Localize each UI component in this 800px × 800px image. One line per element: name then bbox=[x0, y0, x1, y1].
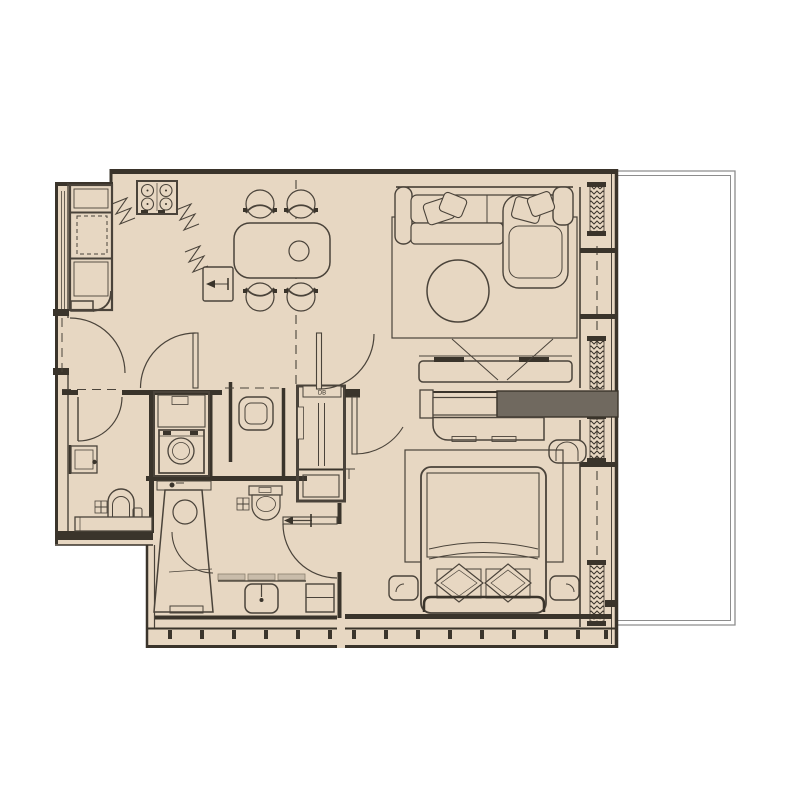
toilet bbox=[108, 489, 134, 521]
shelf bbox=[75, 517, 152, 531]
bedroom-door-stub bbox=[345, 389, 360, 398]
balcony bbox=[618, 171, 735, 625]
divider-end-cap bbox=[420, 390, 433, 418]
db-label: DB bbox=[318, 391, 326, 397]
bedroom-door-leaf bbox=[352, 397, 357, 454]
stove bbox=[137, 181, 177, 214]
hall-table bbox=[239, 397, 273, 430]
floor-plan: DB bbox=[0, 0, 800, 800]
armchair bbox=[549, 440, 586, 463]
side-label-box bbox=[298, 407, 304, 439]
guestbath-exterior-wall bbox=[55, 531, 153, 540]
bed-frame bbox=[421, 467, 546, 613]
insulation-hatch-2 bbox=[590, 339, 604, 389]
corridor-door-leaf bbox=[317, 333, 322, 389]
wall-sink bbox=[71, 446, 97, 473]
nightstand-right bbox=[550, 576, 579, 600]
insulation-hatch-1 bbox=[590, 186, 604, 234]
insulation-hatch-3 bbox=[590, 419, 604, 461]
balcony-inner-line bbox=[618, 176, 731, 621]
dishwasher bbox=[203, 267, 233, 301]
sliding-pocket bbox=[433, 398, 497, 416]
nightstand-left bbox=[389, 576, 418, 600]
left-wall-cap-upper bbox=[53, 309, 69, 316]
shower-valve bbox=[170, 483, 175, 488]
dining-table bbox=[234, 223, 330, 278]
right-wall-corner-cap bbox=[605, 600, 617, 607]
dresser bbox=[433, 418, 544, 441]
floor-plan-canvas: DB bbox=[0, 0, 800, 800]
hall-door-leaf bbox=[193, 333, 198, 388]
left-wall-cap-lower bbox=[53, 368, 69, 375]
coffee-table bbox=[427, 260, 489, 322]
balcony-outline bbox=[618, 171, 735, 625]
insulation-hatch-4 bbox=[590, 564, 604, 624]
wardrobe-unit bbox=[497, 391, 618, 417]
